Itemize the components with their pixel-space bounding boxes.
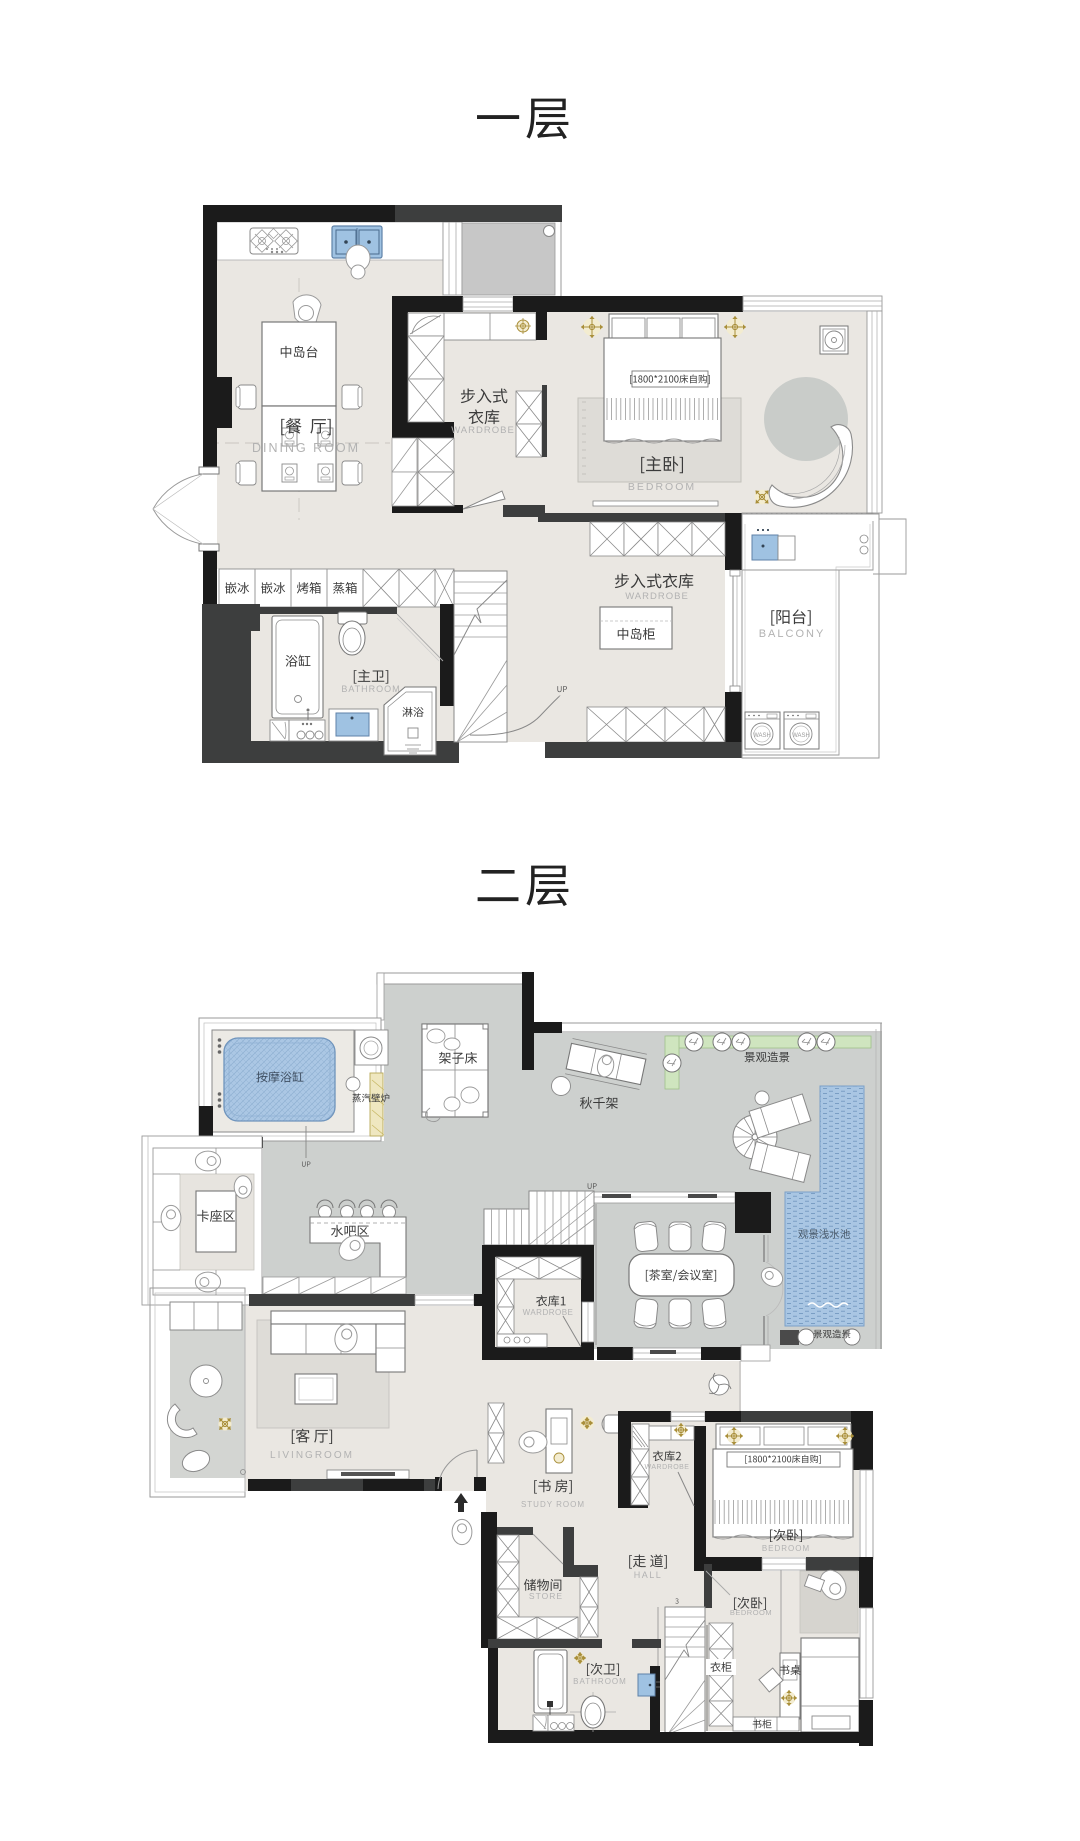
svg-text:LIVINGROOM: LIVINGROOM (270, 1450, 354, 1461)
svg-text:WASH: WASH (753, 733, 771, 739)
svg-text:BATHROOM: BATHROOM (341, 684, 400, 694)
svg-text:STUDY ROOM: STUDY ROOM (521, 1500, 585, 1509)
svg-text:WARDROBE: WARDROBE (645, 1464, 690, 1471)
svg-text:BALCONY: BALCONY (759, 628, 826, 640)
svg-text:WARDROBE: WARDROBE (523, 1308, 574, 1317)
svg-text:BEDROOM: BEDROOM (628, 481, 696, 493)
svg-text:STORE: STORE (529, 1591, 563, 1601)
svg-text:WASH: WASH (792, 733, 810, 739)
svg-text:BATHROOM: BATHROOM (573, 1677, 627, 1686)
svg-text:BEDROOM: BEDROOM (730, 1608, 772, 1617)
svg-text:WARDROBE: WARDROBE (625, 591, 689, 602)
svg-text:WARDROBE: WARDROBE (451, 425, 515, 436)
svg-text:HALL: HALL (634, 1570, 663, 1580)
svg-text:DINING ROOM: DINING ROOM (252, 441, 360, 455)
svg-text:BEDROOM: BEDROOM (762, 1544, 810, 1553)
